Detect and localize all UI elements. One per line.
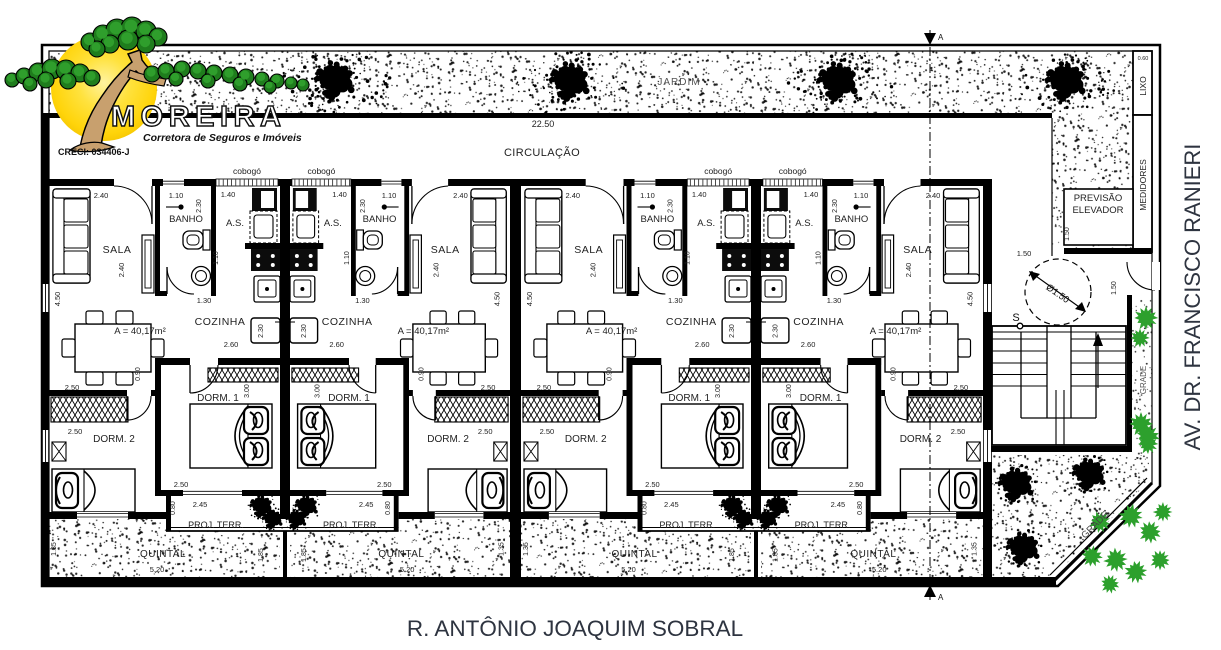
svg-text:1.40: 1.40 <box>804 190 819 199</box>
svg-text:0.90: 0.90 <box>891 367 898 381</box>
svg-text:1.85: 1.85 <box>729 548 736 562</box>
svg-text:cobogó: cobogó <box>779 166 807 176</box>
svg-text:R. ANTÔNIO JOAQUIM SOBRAL: R. ANTÔNIO JOAQUIM SOBRAL <box>407 616 743 641</box>
svg-text:2.60: 2.60 <box>695 340 710 349</box>
svg-text:1.35: 1.35 <box>971 542 978 556</box>
svg-text:1.10: 1.10 <box>213 251 220 265</box>
svg-text:A = 40,17m²: A = 40,17m² <box>870 326 922 337</box>
svg-text:4.50: 4.50 <box>965 292 974 307</box>
svg-text:ELEVADOR: ELEVADOR <box>1072 205 1123 216</box>
svg-text:BANHO: BANHO <box>169 214 203 225</box>
svg-text:DORM. 1: DORM. 1 <box>328 393 370 404</box>
svg-text:2.60: 2.60 <box>224 340 239 349</box>
svg-text:2.45: 2.45 <box>664 500 679 509</box>
svg-text:cobogó: cobogó <box>704 166 732 176</box>
svg-text:2.50: 2.50 <box>377 480 392 489</box>
svg-text:2.40: 2.40 <box>432 263 441 278</box>
svg-text:2.50: 2.50 <box>645 480 660 489</box>
svg-text:1.30: 1.30 <box>197 296 212 305</box>
svg-text:22.50: 22.50 <box>532 119 555 129</box>
svg-text:1.30: 1.30 <box>668 296 683 305</box>
svg-text:COZINHA: COZINHA <box>195 316 246 328</box>
svg-text:BANHO: BANHO <box>641 214 675 225</box>
svg-text:2.30: 2.30 <box>832 199 839 213</box>
svg-text:PROJ. TERR.: PROJ. TERR. <box>659 520 715 530</box>
svg-text:5.20: 5.20 <box>872 565 887 574</box>
svg-text:4.50: 4.50 <box>493 292 502 307</box>
svg-text:2.40: 2.40 <box>117 263 126 278</box>
svg-text:2.40: 2.40 <box>453 191 468 200</box>
svg-text:2.40: 2.40 <box>565 191 580 200</box>
svg-text:2.45: 2.45 <box>831 500 846 509</box>
svg-text:3.00: 3.00 <box>244 384 251 398</box>
svg-text:2.30: 2.30 <box>667 199 674 213</box>
svg-text:2.60: 2.60 <box>801 340 816 349</box>
svg-text:1.10: 1.10 <box>344 251 351 265</box>
svg-text:4.50: 4.50 <box>53 292 62 307</box>
svg-text:PROJ. TERR.: PROJ. TERR. <box>323 520 379 530</box>
svg-text:1.50: 1.50 <box>1017 249 1032 258</box>
svg-text:DORM. 2: DORM. 2 <box>900 434 942 445</box>
svg-text:2.30: 2.30 <box>360 199 367 213</box>
svg-text:DORM. 1: DORM. 1 <box>197 393 239 404</box>
svg-text:2.50: 2.50 <box>849 480 864 489</box>
svg-text:DORM. 1: DORM. 1 <box>668 393 710 404</box>
svg-text:A.S.: A.S. <box>324 218 342 229</box>
svg-text:A = 40,17m²: A = 40,17m² <box>398 326 450 337</box>
svg-text:SALA: SALA <box>903 244 932 256</box>
svg-text:cobogó: cobogó <box>233 166 261 176</box>
svg-text:A.S.: A.S. <box>226 218 244 229</box>
svg-text:A: A <box>938 593 944 602</box>
svg-text:1.35: 1.35 <box>498 542 505 556</box>
svg-text:2.50: 2.50 <box>951 427 966 436</box>
svg-text:1.35: 1.35 <box>51 542 58 556</box>
svg-text:COZINHA: COZINHA <box>666 316 717 328</box>
svg-text:COZINHA: COZINHA <box>793 316 844 328</box>
svg-text:QUINTAL: QUINTAL <box>611 549 657 560</box>
svg-text:BANHO: BANHO <box>363 214 397 225</box>
svg-text:2.50: 2.50 <box>68 427 83 436</box>
svg-text:PREVISÃO: PREVISÃO <box>1074 193 1123 204</box>
svg-text:1.10: 1.10 <box>640 191 655 200</box>
svg-text:2.50: 2.50 <box>540 427 555 436</box>
svg-text:2.30: 2.30 <box>258 324 265 338</box>
svg-text:A.S.: A.S. <box>697 218 715 229</box>
svg-text:A: A <box>938 33 944 42</box>
svg-text:SALA: SALA <box>103 244 132 256</box>
svg-text:COZINHA: COZINHA <box>322 316 373 328</box>
svg-text:1.85: 1.85 <box>772 548 779 562</box>
svg-text:BANHO: BANHO <box>834 214 868 225</box>
svg-text:CIRCULAÇÃO: CIRCULAÇÃO <box>504 146 580 159</box>
svg-text:0.60: 0.60 <box>1138 56 1149 62</box>
svg-text:cobogó: cobogó <box>307 166 335 176</box>
svg-text:2.40: 2.40 <box>904 263 913 278</box>
svg-text:A = 40,17m²: A = 40,17m² <box>114 326 166 337</box>
svg-text:1.30: 1.30 <box>827 296 842 305</box>
svg-text:S: S <box>1012 312 1019 324</box>
svg-text:1.40: 1.40 <box>221 190 236 199</box>
svg-text:5.20: 5.20 <box>150 565 165 574</box>
svg-text:MEDIDORES: MEDIDORES <box>1138 159 1148 211</box>
svg-text:AV. DR. FRANCISCO RANIERI: AV. DR. FRANCISCO RANIERI <box>1180 144 1205 451</box>
svg-text:1.10: 1.10 <box>854 191 869 200</box>
svg-text:4.50: 4.50 <box>525 292 534 307</box>
svg-text:2.30: 2.30 <box>196 199 203 213</box>
svg-text:2.45: 2.45 <box>193 500 208 509</box>
svg-text:SALA: SALA <box>431 244 460 256</box>
svg-text:0.80: 0.80 <box>641 501 648 515</box>
svg-text:DORM. 2: DORM. 2 <box>565 434 607 445</box>
svg-text:CRECI: 034406-J: CRECI: 034406-J <box>58 147 130 157</box>
svg-text:2.40: 2.40 <box>94 191 109 200</box>
svg-text:PROJ. TERR.: PROJ. TERR. <box>795 520 851 530</box>
svg-text:0.80: 0.80 <box>170 501 177 515</box>
svg-text:3.00: 3.00 <box>715 384 722 398</box>
svg-text:QUINTAL: QUINTAL <box>140 549 186 560</box>
svg-text:2.40: 2.40 <box>589 263 598 278</box>
svg-text:0.90: 0.90 <box>418 367 425 381</box>
svg-text:2.60: 2.60 <box>329 340 344 349</box>
svg-text:2.40: 2.40 <box>926 191 941 200</box>
svg-text:0.90: 0.90 <box>135 367 142 381</box>
svg-text:3.00: 3.00 <box>315 384 322 398</box>
svg-text:2.50: 2.50 <box>174 480 189 489</box>
svg-text:1.40: 1.40 <box>332 190 347 199</box>
svg-text:2.50: 2.50 <box>478 427 493 436</box>
svg-text:DORM. 2: DORM. 2 <box>427 434 469 445</box>
svg-text:0.80: 0.80 <box>857 501 864 515</box>
svg-text:1.50: 1.50 <box>1064 227 1071 241</box>
svg-text:2.30: 2.30 <box>301 324 308 338</box>
svg-text:1.30: 1.30 <box>355 296 370 305</box>
svg-text:2.30: 2.30 <box>772 324 779 338</box>
svg-text:1.10: 1.10 <box>382 191 397 200</box>
svg-text:A = 40,17m²: A = 40,17m² <box>586 326 638 337</box>
svg-text:LIXO: LIXO <box>1138 76 1148 96</box>
svg-text:QUINTAL: QUINTAL <box>378 549 424 560</box>
svg-text:PROJ. TERR.: PROJ. TERR. <box>188 520 244 530</box>
svg-text:1.10: 1.10 <box>684 251 691 265</box>
svg-text:1.85: 1.85 <box>301 548 308 562</box>
svg-text:JARDIM: JARDIM <box>657 77 700 88</box>
svg-text:A.S.: A.S. <box>795 218 813 229</box>
svg-text:MOREIRA: MOREIRA <box>111 101 286 133</box>
svg-text:SALA: SALA <box>574 244 603 256</box>
svg-text:1.85: 1.85 <box>258 548 265 562</box>
svg-text:5.20: 5.20 <box>621 565 636 574</box>
svg-text:5.20: 5.20 <box>400 565 415 574</box>
svg-text:2.45: 2.45 <box>359 500 374 509</box>
svg-text:1.10: 1.10 <box>816 251 823 265</box>
svg-text:DORM. 1: DORM. 1 <box>800 393 842 404</box>
svg-text:Corretora de Seguros e Imóveis: Corretora de Seguros e Imóveis <box>143 132 302 144</box>
svg-text:DORM. 2: DORM. 2 <box>93 434 135 445</box>
svg-text:2.30: 2.30 <box>729 324 736 338</box>
svg-text:GRADE: GRADE <box>1139 366 1148 394</box>
svg-text:0.90: 0.90 <box>607 367 614 381</box>
svg-text:1.35: 1.35 <box>523 542 530 556</box>
svg-text:1.40: 1.40 <box>692 190 707 199</box>
svg-text:0.80: 0.80 <box>385 501 392 515</box>
svg-text:1.10: 1.10 <box>169 191 184 200</box>
svg-text:QUINTAL: QUINTAL <box>850 549 896 560</box>
svg-text:1.50: 1.50 <box>1111 281 1118 295</box>
svg-text:3.00: 3.00 <box>786 384 793 398</box>
